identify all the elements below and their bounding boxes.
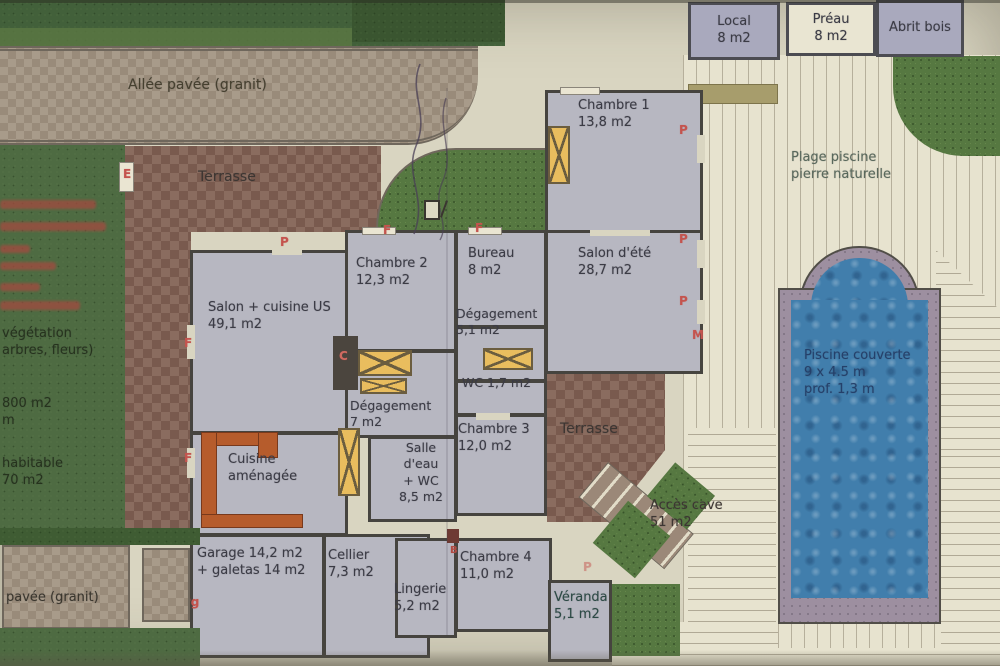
marker-window: F — [184, 452, 192, 464]
label-degagement-2: Dégagement 7 m2 — [350, 398, 431, 431]
paving-right-of-pool — [941, 450, 1000, 622]
door-gap — [590, 230, 650, 236]
marker-door: P — [679, 233, 688, 245]
top-hedge-dark-patch — [352, 0, 505, 42]
abri-bois-label: Abrit bois — [889, 20, 951, 37]
pool-deck-label: Plage piscine pierre naturelle — [791, 150, 891, 184]
habitable-note: habitable 70 m2 — [2, 456, 63, 490]
marker-door: P — [280, 236, 289, 248]
marker-window: F — [184, 337, 192, 349]
illegible-red-note — [0, 200, 96, 209]
terrace-top — [125, 146, 381, 232]
paved-alley-bottom-label: pavée (granit) — [6, 590, 99, 607]
marker-b: B — [450, 546, 458, 556]
label-chambre-4: Chambre 4 11,0 m2 — [460, 550, 532, 584]
small-red-block — [447, 529, 459, 543]
door-gap — [697, 300, 705, 324]
marker-m: M — [692, 329, 704, 341]
floor-plan: Allée pavée (granit) Plage piscine pierr… — [0, 0, 1000, 666]
label-salon-cuisine: Salon + cuisine US 49,1 m2 — [208, 300, 331, 334]
hand-drawn-box — [424, 200, 440, 220]
vegetation-note: végétation arbres, fleurs) — [2, 326, 93, 360]
door-gap — [697, 240, 705, 268]
photo-shadow-top — [0, 0, 1000, 3]
room-salon-cuisine — [190, 250, 348, 434]
marker-door: P — [679, 295, 688, 307]
hatched-window — [358, 350, 412, 376]
cellar-access-label: Accès cave 51 m2 — [650, 498, 723, 532]
outbuilding-preau: Préau 8 m2 — [786, 2, 876, 56]
room-chambre-2 — [345, 230, 457, 352]
outbuilding-local: Local 8 m2 — [688, 2, 780, 60]
hatched-window — [338, 428, 360, 496]
label-bureau: Bureau 8 m2 — [468, 246, 514, 280]
marker-door: P — [679, 124, 688, 136]
pool-bottom-skirt — [778, 622, 941, 648]
door-gap — [697, 135, 705, 163]
paved-area-bottom-left — [2, 545, 130, 629]
hatched-window — [548, 126, 570, 184]
door-gap — [476, 413, 510, 420]
hatched-window — [483, 348, 533, 370]
illegible-red-note — [0, 262, 56, 270]
illegible-red-note — [0, 301, 80, 310]
label-chambre-2: Chambre 2 12,3 m2 — [356, 256, 428, 290]
label-veranda: Véranda 5,1 m2 — [554, 590, 608, 624]
label-salon-ete: Salon d'été 28,7 m2 — [578, 246, 651, 280]
top-hedge-light-band — [0, 28, 352, 46]
pool-water — [791, 300, 928, 598]
label-wc: WC 1,7 m2 — [462, 375, 531, 391]
terrace-top-label: Terrasse — [198, 168, 256, 186]
preau-label: Préau 8 m2 — [813, 12, 850, 46]
terrace-left-strip — [125, 232, 191, 538]
terrace-right-label: Terrasse — [560, 420, 618, 438]
terrain-note: 800 m2 m — [2, 396, 52, 430]
label-chambre-1: Chambre 1 13,8 m2 — [578, 98, 650, 132]
window-sill — [560, 87, 600, 95]
local-label: Local 8 m2 — [717, 14, 751, 48]
illegible-red-note — [0, 222, 106, 231]
label-garage: Garage 14,2 m2 + galetas 14 m2 — [197, 546, 305, 580]
label-cuisine: Cuisine aménagée — [228, 452, 297, 486]
label-cellier: Cellier 7,3 m2 — [328, 548, 374, 582]
fold-crease — [446, 88, 448, 636]
label-chambre-3: Chambre 3 12,0 m2 — [458, 422, 530, 456]
marker-door: P — [583, 561, 592, 573]
marker-chimney: C — [339, 350, 348, 362]
illegible-red-note — [0, 245, 30, 253]
pool-label: Piscine couverte 9 x 4.5 m prof. 1,3 m — [804, 348, 911, 399]
kitchen-counter-bottom — [201, 514, 303, 528]
label-salle-eau: Salle d'eau + WC 8,5 m2 — [390, 440, 452, 505]
illegible-red-note — [0, 283, 40, 291]
chimney-block — [333, 336, 358, 390]
photo-shadow-bottom — [0, 650, 1000, 666]
paved-pad-bottom — [142, 548, 190, 622]
marker-entry: E — [123, 168, 131, 180]
paved-alley-label: Allée pavée (granit) — [128, 76, 267, 94]
outbuilding-abri-bois: Abrit bois — [876, 0, 964, 57]
label-lingerie: Lingerie 5,2 m2 — [394, 582, 446, 616]
hedge-bottom-left — [0, 528, 200, 545]
marker-window: F — [383, 224, 391, 236]
hatched-window — [360, 378, 407, 394]
label-degagement-1: Dégagement 5,1 m2 — [456, 306, 537, 339]
